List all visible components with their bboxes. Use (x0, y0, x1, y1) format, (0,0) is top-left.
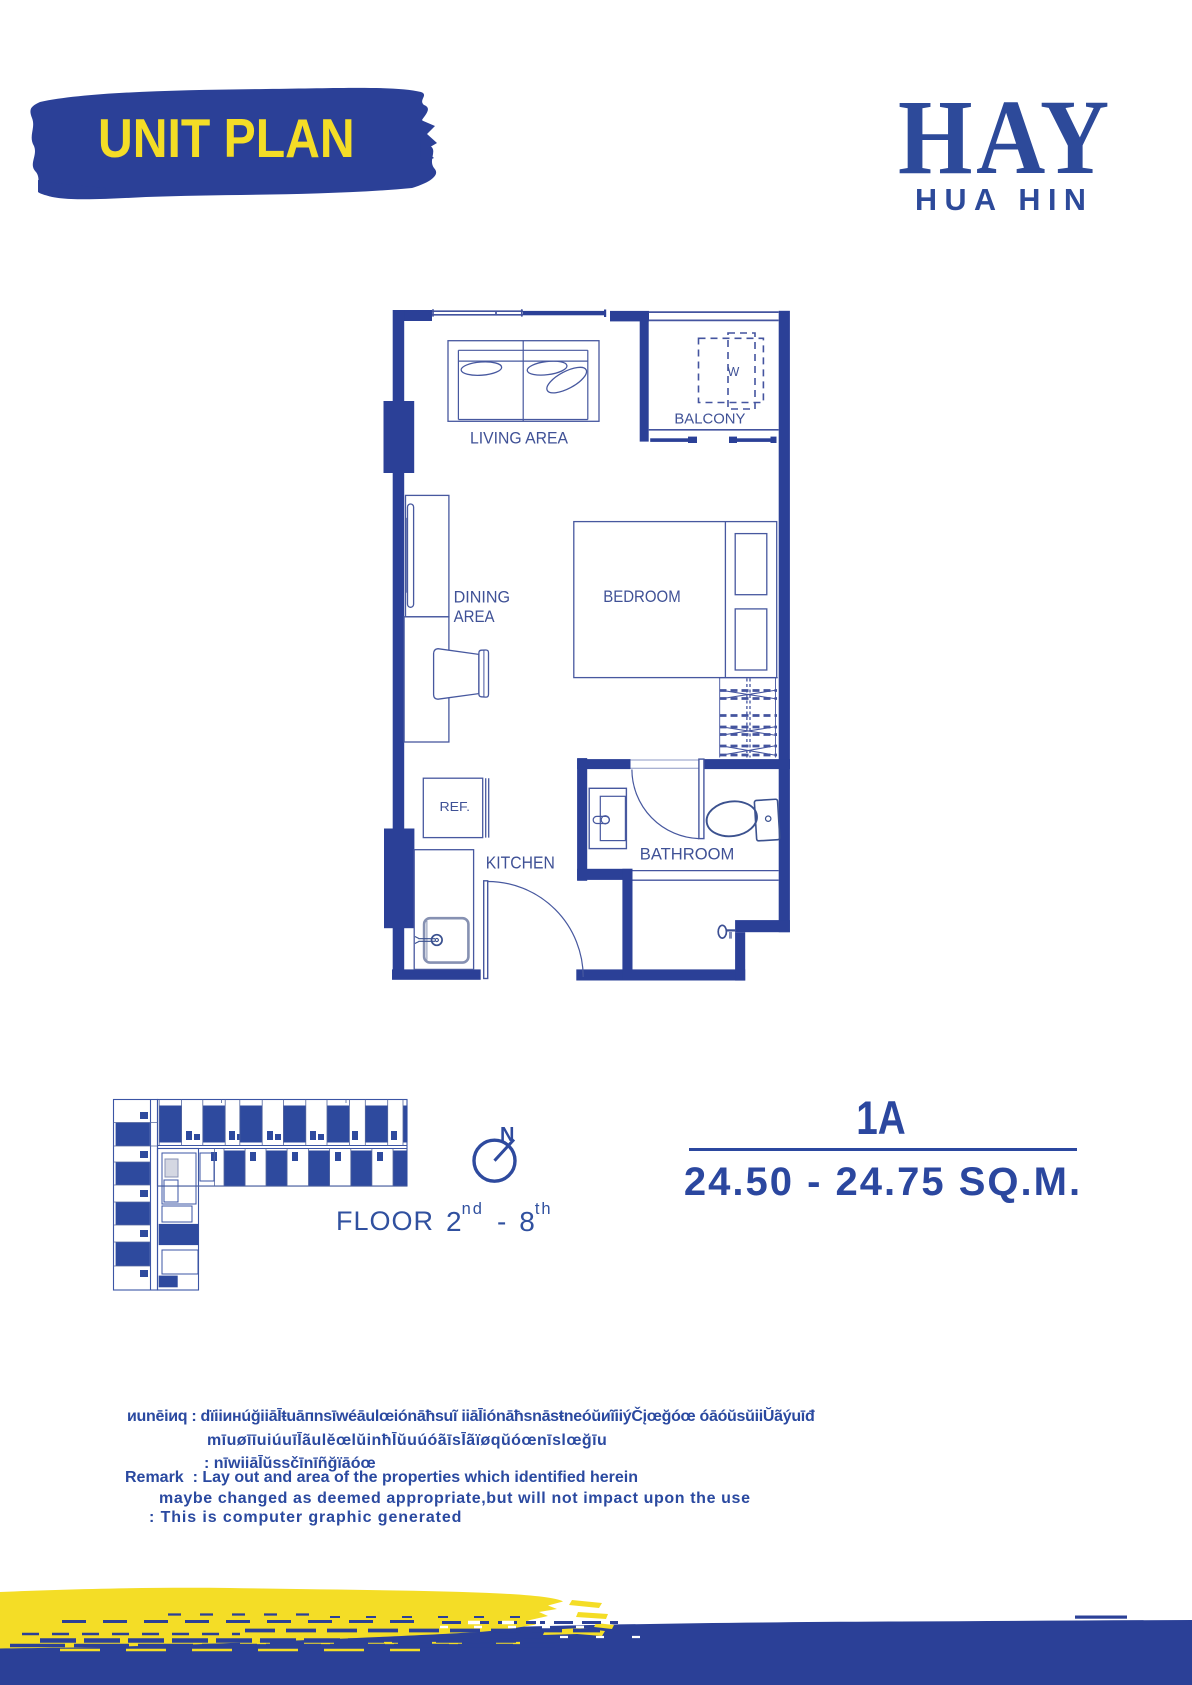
svg-text:LIVING AREA: LIVING AREA (470, 428, 569, 447)
svg-text:REF.: REF. (440, 799, 471, 814)
svg-text:DINING: DINING (454, 587, 511, 606)
svg-text:N: N (500, 1124, 514, 1146)
svg-text:BATHROOM: BATHROOM (640, 845, 735, 864)
svg-text:BALCONY: BALCONY (674, 412, 745, 428)
svg-text:BEDROOM: BEDROOM (603, 587, 681, 606)
svg-text:KITCHEN: KITCHEN (486, 853, 555, 873)
svg-text:AREA: AREA (454, 607, 496, 626)
svg-text:W: W (728, 365, 740, 379)
